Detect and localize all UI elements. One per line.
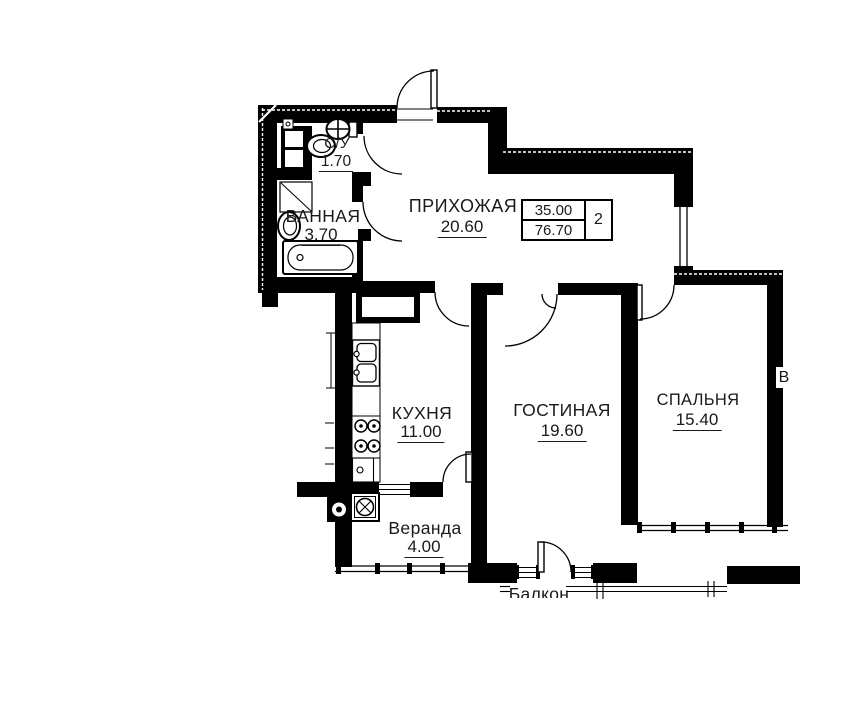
room-count-value: 2 xyxy=(584,201,611,239)
bedroom-top-wall xyxy=(674,270,783,285)
top-wall-left xyxy=(258,105,397,123)
room-area-living: 19.60 xyxy=(538,422,587,442)
wall-label-v: В xyxy=(779,369,790,387)
living-bottom-wall-left xyxy=(468,563,517,583)
room-area-bedroom: 15.40 xyxy=(673,411,722,431)
duct-opening-2 xyxy=(285,150,303,167)
dimension-ticks xyxy=(325,333,336,464)
room-label-living: ГОСТИНАЯ xyxy=(513,401,611,419)
room-area-su: 1.70 xyxy=(319,154,353,172)
kitchen-sink xyxy=(353,340,380,386)
stove xyxy=(355,420,380,452)
room-label-balcony-clip: Балкон xyxy=(501,584,577,598)
washing-machine xyxy=(351,493,379,521)
balcony-right-wall xyxy=(727,566,800,584)
duct-opening-1 xyxy=(285,131,303,147)
right-wall-upper xyxy=(674,166,693,207)
room-label-bedroom: СПАЛЬНЯ xyxy=(657,392,740,409)
bedroom-door xyxy=(637,285,674,320)
total-area-value: 76.70 xyxy=(523,219,584,239)
room-label-veranda: Веранда xyxy=(388,519,461,537)
area-stamp: 35.00 76.70 2 xyxy=(521,199,613,241)
living-area-value: 35.00 xyxy=(523,201,584,219)
room-label-balcony: Балкон xyxy=(501,584,577,598)
left-exterior-wall xyxy=(258,105,277,293)
room-label-bathroom: ВАННАЯ xyxy=(286,207,361,225)
room-label-hallway: ПРИХОЖАЯ xyxy=(409,197,518,216)
su-vent xyxy=(283,119,293,129)
su-door xyxy=(364,136,402,174)
entrance-door xyxy=(397,70,437,120)
kitchen-cabinet xyxy=(353,458,374,482)
kitchen-veranda-window xyxy=(375,482,414,497)
hallway-window xyxy=(680,207,687,266)
floor-plan: С/У 1.70 ВАННАЯ 3.70 ПРИХОЖАЯ 20.60 КУХН… xyxy=(0,0,855,720)
living-window-right xyxy=(571,565,595,579)
bedroom-glazing xyxy=(637,522,788,533)
floor-plan-drawing xyxy=(0,0,855,720)
balcony-door xyxy=(538,542,571,572)
bathtub xyxy=(283,241,358,274)
kitchen-door xyxy=(435,292,469,326)
left-wall-stub xyxy=(262,293,278,307)
living-room-door xyxy=(505,294,557,346)
veranda-glazing xyxy=(335,563,468,574)
kitchen-bottom-wall-right xyxy=(412,482,443,497)
drain-unit xyxy=(327,497,351,522)
top-wall-mid xyxy=(437,107,490,123)
room-area-hallway: 20.60 xyxy=(438,218,487,238)
bedroom-right-wall xyxy=(767,270,783,527)
veranda-door xyxy=(443,452,472,482)
room-label-su: С/У xyxy=(324,136,349,152)
kitchen-living-wall xyxy=(471,283,487,583)
door-jamb-stub-a xyxy=(358,172,371,186)
living-window-left xyxy=(515,565,540,579)
vent-shaft-inner xyxy=(362,297,414,317)
room-area-kitchen: 11.00 xyxy=(397,423,444,443)
living-top-wall-right xyxy=(558,283,622,295)
living-bottom-wall-right xyxy=(593,563,637,583)
room-label-kitchen: КУХНЯ xyxy=(392,404,452,422)
kitchen-left-wall xyxy=(335,281,352,567)
door-jamb-stub-b xyxy=(358,229,371,241)
area-stamp-values: 35.00 76.70 xyxy=(523,201,584,239)
living-bedroom-wall xyxy=(621,283,638,525)
room-area-veranda: 4.00 xyxy=(404,538,443,558)
room-area-bathroom: 3.70 xyxy=(301,226,340,246)
